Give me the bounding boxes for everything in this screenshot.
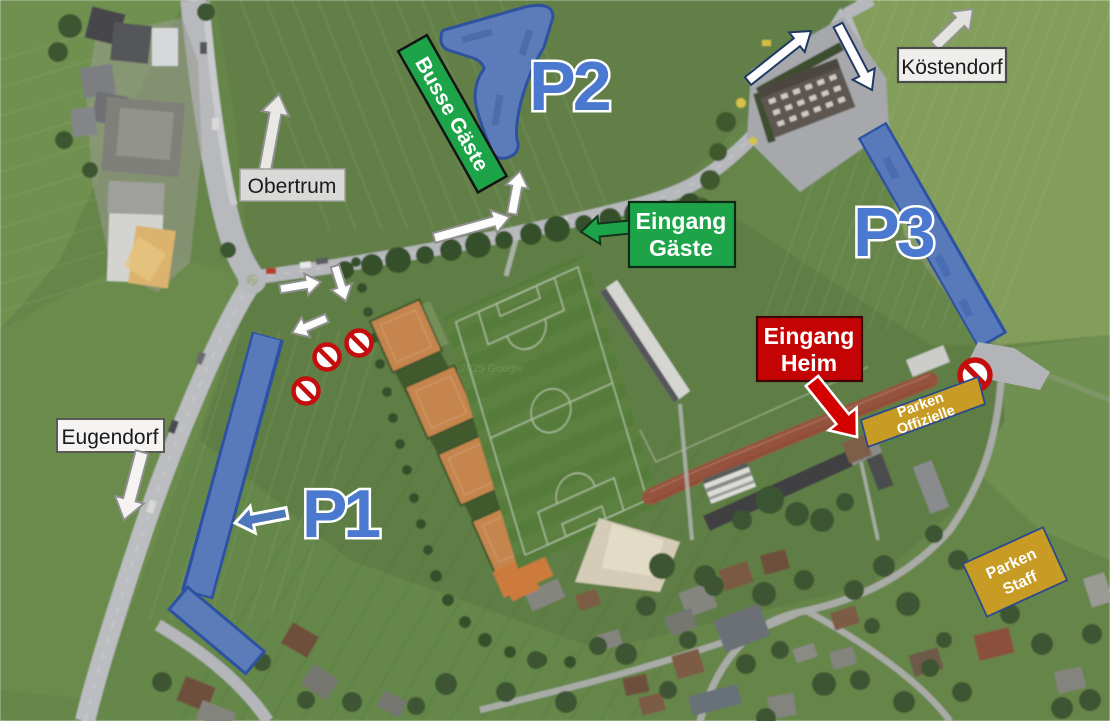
svg-text:Heim: Heim	[781, 350, 837, 376]
svg-text:Eingang: Eingang	[764, 323, 855, 349]
svg-text:P2: P2	[529, 47, 610, 125]
svg-text:Köstendorf: Köstendorf	[901, 56, 1003, 79]
svg-text:P3: P3	[853, 193, 934, 271]
svg-text:Eugendorf: Eugendorf	[62, 426, 159, 449]
svg-text:Obertrum: Obertrum	[248, 175, 337, 198]
svg-text:Gäste: Gäste	[649, 235, 713, 261]
svg-text:Eingang: Eingang	[636, 208, 727, 234]
svg-text:2025 Google: 2025 Google	[460, 363, 523, 375]
svg-text:P1: P1	[302, 476, 379, 552]
